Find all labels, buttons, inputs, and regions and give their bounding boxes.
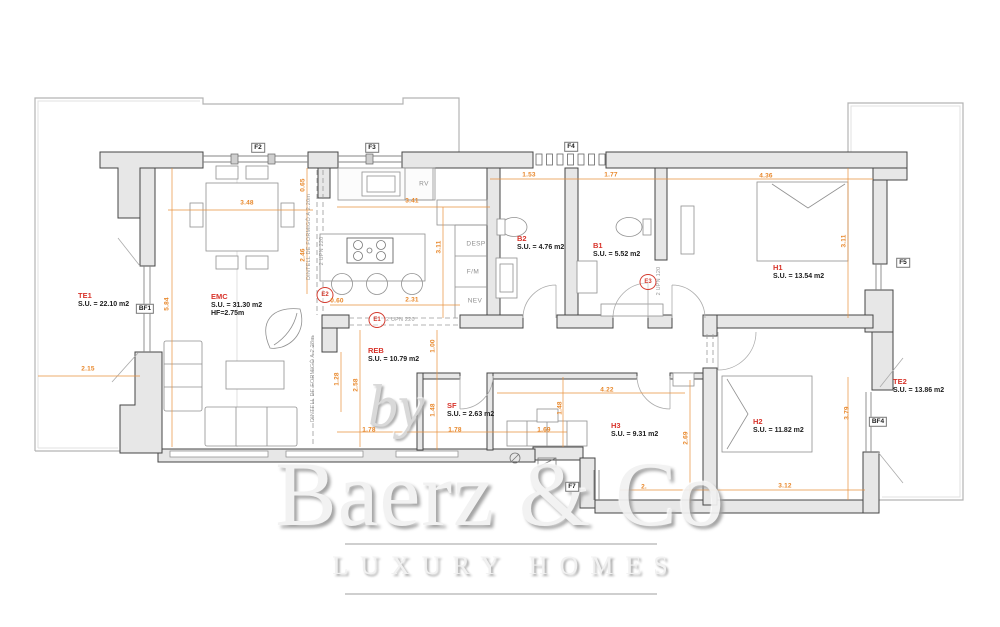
dimension-label: 1.78 (448, 426, 461, 433)
dimension-label: 3.41 (405, 197, 418, 204)
tag-bf1: BF1 (136, 304, 154, 314)
label-fridge: NEV (468, 297, 483, 304)
room-label-te1: TE1 S.U. = 22.10 m2 (78, 292, 129, 309)
room-label-h1: H1 S.U. = 13.54 m2 (773, 264, 824, 281)
label-dishwasher: RV (419, 180, 429, 187)
dimension-label: 5.84 (163, 297, 170, 310)
dimension-label: 3.79 (843, 406, 850, 419)
room-name: H2 (753, 418, 804, 427)
dimension-label: 0.60 (330, 297, 343, 304)
floor-plan-page: by Baerz & Co LUXURY HOMES TE1 S.U. = 22… (0, 0, 1000, 627)
label-pantry: DESP (466, 240, 485, 247)
dimension-label: 1.69 (537, 426, 550, 433)
dimension-label: 1.48 (429, 403, 436, 416)
label-oven-microwave: F/M (467, 268, 479, 275)
room-label-b2: B2 S.U. = 4.76 m2 (517, 235, 564, 252)
dimension-label: 1.78 (362, 426, 375, 433)
tag-f4: F4 (564, 142, 578, 152)
room-label-reb: REB S.U. = 10.79 m2 (368, 347, 419, 364)
room-area: S.U. = 22.10 m2 (78, 301, 129, 309)
room-area: S.U. = 11.82 m2 (753, 427, 804, 435)
wardrobe (681, 206, 694, 254)
room-name: TE1 (78, 292, 129, 301)
dimension-label: 2.58 (352, 378, 359, 391)
dimension-label: 2.31 (405, 296, 418, 303)
room-label-sf: SF S.U. = 2.63 m2 (447, 402, 494, 419)
tag-f3: F3 (365, 143, 379, 153)
dimension-label: 2. (641, 483, 647, 490)
room-area: S.U. = 13.54 m2 (773, 273, 824, 281)
room-label-h2: H2 S.U. = 11.82 m2 (753, 418, 804, 435)
room-name: B2 (517, 235, 564, 244)
dimension-label: 3.12 (778, 482, 791, 489)
room-label-emc: EMC S.U. = 31.30 m2 HF=2.75m (211, 293, 262, 318)
dimension-label: 0.65 (299, 178, 306, 191)
tag-f5: F5 (896, 258, 910, 268)
dining-table (206, 183, 278, 251)
window-mullions (231, 154, 373, 164)
room-area: S.U. = 2.63 m2 (447, 411, 494, 419)
beam-note-e2: 2 UPN 220 (319, 237, 325, 266)
dimension-label: 1.53 (522, 171, 535, 178)
room-label-b1: B1 S.U. = 5.52 m2 (593, 242, 640, 259)
dimension-label: 2.15 (81, 365, 94, 372)
room-area: S.U. = 5.52 m2 (593, 251, 640, 259)
marker-e3: E3 (640, 274, 657, 290)
lintel-note-220: DINTELL DE FORMIGÓ A 2.20m (306, 194, 312, 280)
vent-band (536, 154, 605, 165)
room-name: H1 (773, 264, 824, 273)
shower-tray (601, 304, 663, 316)
furniture (164, 166, 848, 452)
lintel-note-228: DINTELL DE FORMIGÓ A 2.28m (310, 336, 316, 422)
dimension-label: 1.77 (604, 171, 617, 178)
dimension-label: 4.22 (600, 386, 613, 393)
room-label-te2: TE2 S.U. = 13.86 m2 (893, 378, 944, 395)
dimension-label: 3.11 (435, 240, 442, 253)
room-area: S.U. = 4.76 m2 (517, 244, 564, 252)
dimension-label: 3.11 (840, 234, 847, 247)
room-area: S.U. = 9.31 m2 (611, 431, 658, 439)
room-name: REB (368, 347, 419, 356)
sink (577, 261, 597, 293)
tag-bf4: BF4 (869, 417, 887, 427)
beam-note-e1: 2 UPN 220 (386, 317, 415, 323)
room-name: H3 (611, 422, 658, 431)
cooktop (347, 238, 393, 263)
dimension-label: 1.00 (429, 339, 436, 352)
room-name: SF (447, 402, 494, 411)
dimension-label: 2.69 (682, 431, 689, 444)
bed (757, 182, 848, 261)
tag-f7: F7 (565, 482, 579, 492)
dimension-label: 3.48 (240, 199, 253, 206)
dimension-label: 1.48 (556, 401, 563, 414)
nightstand (673, 373, 694, 386)
bed (722, 376, 812, 452)
dimension-label: 2.46 (299, 248, 306, 261)
sofa (205, 407, 297, 446)
room-area: S.U. = 31.30 m2 (211, 302, 262, 310)
room-name: TE2 (893, 378, 944, 387)
room-area: S.U. = 10.79 m2 (368, 356, 419, 364)
room-height: HF=2.75m (211, 310, 262, 318)
tag-f2: F2 (251, 143, 265, 153)
toilet (616, 218, 642, 237)
sofa (164, 341, 202, 411)
dimension-label: 1.28 (333, 372, 340, 385)
room-name: B1 (593, 242, 640, 251)
room-name: EMC (211, 293, 262, 302)
room-area: S.U. = 13.86 m2 (893, 387, 944, 395)
coffee-table (226, 361, 284, 389)
room-label-h3: H3 S.U. = 9.31 m2 (611, 422, 658, 439)
marker-e1: E1 (369, 312, 386, 328)
beam-note-e3: 2 UPN 120 (656, 267, 662, 296)
sliding-glazing (170, 451, 458, 457)
dimension-label: 4.36 (759, 172, 772, 179)
